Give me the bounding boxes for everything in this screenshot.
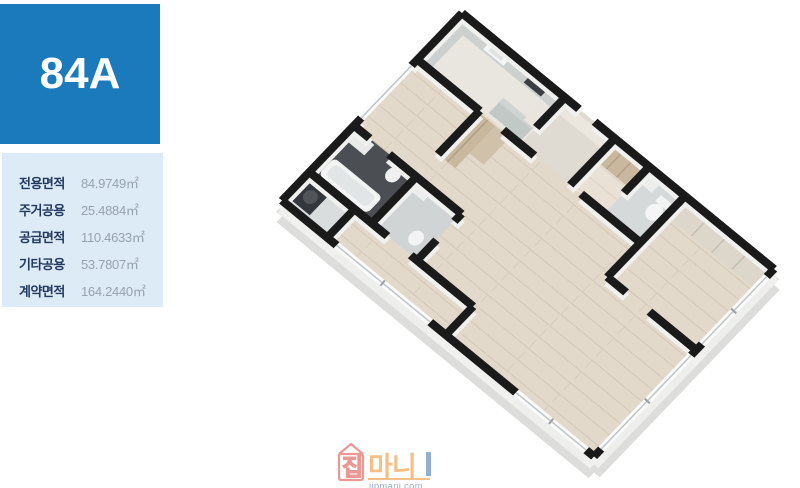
watermark-brand-house-char: 집 [342, 454, 363, 480]
watermark-underline [368, 478, 430, 480]
watermark-blue-accent [426, 452, 431, 476]
watermark-url: jipmani.com [368, 481, 423, 488]
floorplan-page: 84A 전용면적 84.9749㎡ 주거공용 25.4884㎡ 공급면적 110… [0, 0, 800, 488]
floorplan-3d-render: 집 마니 jipmani.com [0, 0, 800, 488]
watermark: 집 마니 jipmani.com [339, 444, 431, 488]
watermark-brand-rest: 마니 [368, 452, 416, 482]
watermark-house-roof-icon [339, 444, 363, 454]
